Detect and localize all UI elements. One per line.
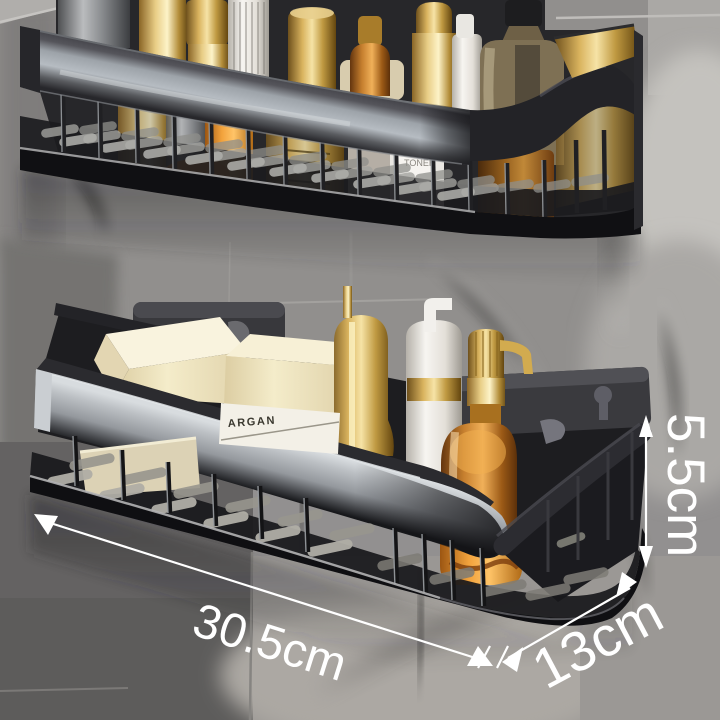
svg-text:5.5cm: 5.5cm	[656, 413, 715, 557]
